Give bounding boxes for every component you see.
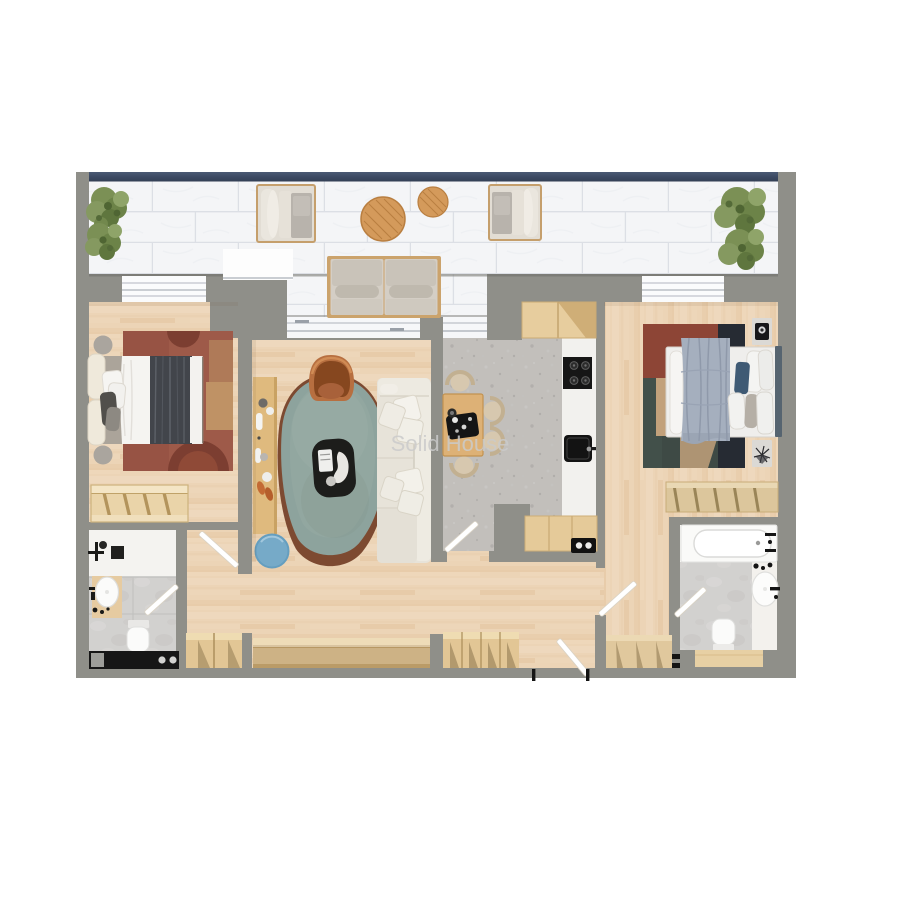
svg-text:Solid House: Solid House	[391, 431, 510, 456]
